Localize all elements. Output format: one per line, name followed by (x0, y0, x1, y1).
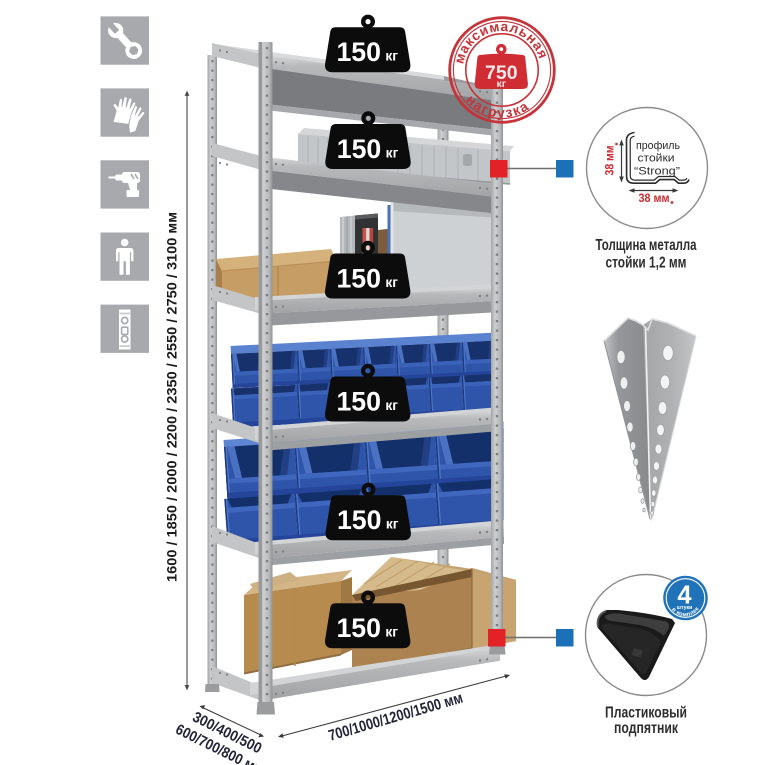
svg-text:штуки: штуки (677, 605, 693, 611)
svg-text:подпятник: подпятник (614, 720, 679, 737)
svg-text:стойки 1,2 мм: стойки 1,2 мм (606, 255, 687, 272)
svg-text:“Strong”: “Strong” (634, 166, 680, 178)
svg-text:кг: кг (496, 78, 506, 90)
svg-text:38 мм: 38 мм (639, 191, 670, 205)
svg-text:Пластиковый: Пластиковый (605, 705, 687, 722)
svg-text:1600 / 1850 / 2000 / 2200 / 23: 1600 / 1850 / 2000 / 2200 / 2350 / 2550 … (165, 212, 180, 582)
svg-text:38 мм: 38 мм (603, 145, 617, 175)
svg-text:стойки: стойки (638, 153, 675, 165)
svg-text:профиль: профиль (636, 140, 680, 152)
svg-text:Толщина металла: Толщина металла (596, 237, 697, 254)
